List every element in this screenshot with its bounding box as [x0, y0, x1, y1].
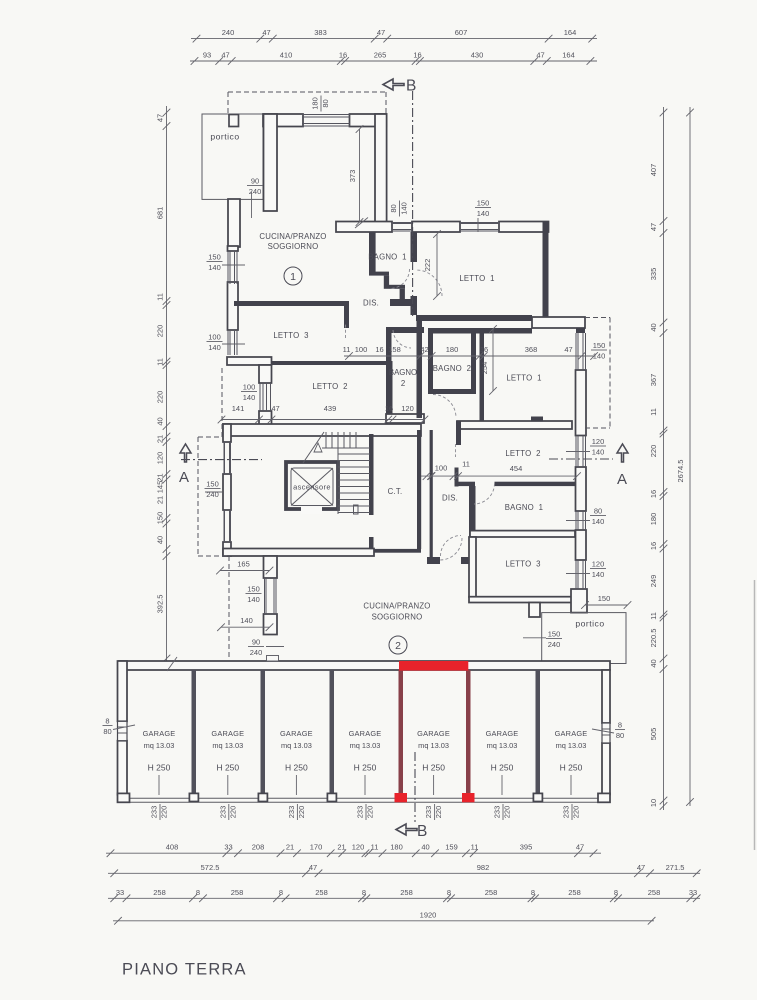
svg-text:150: 150: [206, 480, 219, 489]
svg-text:150: 150: [208, 253, 221, 262]
svg-text:120: 120: [156, 452, 165, 465]
svg-text:8: 8: [531, 888, 535, 897]
svg-text:140: 140: [247, 595, 260, 604]
svg-text:233: 233: [493, 806, 502, 819]
svg-text:80: 80: [616, 731, 624, 740]
svg-text:368: 368: [525, 345, 538, 354]
svg-text:410: 410: [280, 51, 293, 60]
svg-text:335: 335: [649, 268, 658, 281]
svg-text:220: 220: [434, 806, 443, 819]
svg-text:220: 220: [366, 806, 375, 819]
svg-text:H 250: H 250: [491, 763, 514, 773]
svg-text:47: 47: [637, 863, 645, 872]
svg-text:GARAGE: GARAGE: [211, 729, 244, 738]
svg-text:140: 140: [592, 448, 605, 457]
svg-text:16: 16: [413, 51, 421, 60]
svg-text:120: 120: [352, 843, 365, 852]
svg-text:258: 258: [153, 888, 166, 897]
svg-text:158: 158: [388, 345, 401, 354]
svg-text:40: 40: [421, 843, 429, 852]
svg-text:208: 208: [252, 843, 265, 852]
svg-text:265: 265: [374, 51, 387, 60]
svg-text:145: 145: [156, 481, 165, 494]
svg-text:LETTO 2: LETTO 2: [505, 449, 540, 458]
svg-text:258: 258: [568, 888, 581, 897]
svg-text:H 250: H 250: [422, 763, 445, 773]
svg-text:47: 47: [576, 843, 584, 852]
svg-text:220: 220: [156, 325, 165, 338]
svg-text:11: 11: [371, 843, 379, 852]
svg-text:407: 407: [649, 164, 658, 177]
svg-text:PIANO TERRA: PIANO TERRA: [122, 961, 247, 979]
svg-text:220: 220: [228, 806, 237, 819]
svg-text:33: 33: [116, 888, 124, 897]
svg-text:mq 13.03: mq 13.03: [418, 741, 449, 750]
svg-text:982: 982: [477, 863, 490, 872]
svg-text:90: 90: [251, 177, 259, 186]
svg-text:21: 21: [156, 473, 165, 481]
svg-text:607: 607: [455, 28, 468, 37]
svg-text:21: 21: [286, 843, 294, 852]
svg-text:100: 100: [208, 333, 221, 342]
svg-text:47: 47: [649, 223, 658, 231]
svg-text:233: 233: [287, 806, 296, 819]
svg-text:40: 40: [156, 417, 165, 425]
svg-text:mq 13.03: mq 13.03: [144, 741, 175, 750]
svg-text:93: 93: [203, 51, 211, 60]
svg-text:mq 13.03: mq 13.03: [487, 741, 518, 750]
svg-text:258: 258: [648, 888, 661, 897]
svg-text:mq 13.03: mq 13.03: [281, 741, 312, 750]
svg-text:2674.5: 2674.5: [676, 460, 685, 483]
svg-text:A: A: [179, 469, 189, 486]
svg-text:BAGNO: BAGNO: [389, 368, 417, 377]
svg-text:1920: 1920: [420, 910, 437, 919]
svg-text:430: 430: [471, 51, 484, 60]
svg-text:180: 180: [311, 97, 320, 110]
svg-text:8: 8: [105, 717, 109, 726]
svg-text:505: 505: [649, 728, 658, 741]
svg-text:CUCINA/PRANZO: CUCINA/PRANZO: [363, 602, 430, 611]
svg-text:SOGGIORNO: SOGGIORNO: [372, 613, 423, 622]
svg-text:33: 33: [224, 843, 232, 852]
svg-text:220: 220: [649, 445, 658, 458]
svg-text:233: 233: [356, 806, 365, 819]
svg-text:C.T.: C.T.: [388, 487, 403, 496]
svg-text:BAGNO 1: BAGNO 1: [505, 503, 543, 512]
svg-text:16: 16: [649, 490, 658, 498]
svg-text:1: 1: [290, 271, 296, 283]
svg-text:220.5: 220.5: [649, 629, 658, 648]
svg-text:47: 47: [309, 863, 317, 872]
svg-text:150: 150: [156, 512, 165, 525]
svg-text:220: 220: [503, 806, 512, 819]
svg-text:H 250: H 250: [216, 763, 239, 773]
svg-text:11: 11: [471, 843, 479, 852]
svg-text:SOGGIORNO: SOGGIORNO: [268, 242, 319, 251]
svg-text:170: 170: [310, 843, 323, 852]
svg-text:8: 8: [362, 888, 366, 897]
svg-text:LETTO 3: LETTO 3: [273, 331, 308, 340]
svg-text:220: 220: [156, 391, 165, 404]
svg-text:150: 150: [247, 585, 260, 594]
svg-text:47: 47: [271, 404, 279, 413]
svg-text:47: 47: [564, 345, 572, 354]
svg-text:H 250: H 250: [354, 763, 377, 773]
svg-text:100: 100: [435, 464, 448, 473]
svg-text:8: 8: [614, 888, 618, 897]
svg-text:100: 100: [243, 383, 256, 392]
svg-text:8: 8: [618, 721, 622, 730]
svg-text:233: 233: [150, 806, 159, 819]
svg-text:2: 2: [395, 640, 401, 652]
svg-text:ascensore: ascensore: [293, 483, 331, 492]
svg-text:16: 16: [339, 51, 347, 60]
svg-text:47: 47: [156, 114, 165, 122]
svg-text:80: 80: [321, 99, 330, 107]
svg-text:GARAGE: GARAGE: [349, 729, 382, 738]
svg-text:mq 13.03: mq 13.03: [350, 741, 381, 750]
svg-text:H 250: H 250: [560, 763, 583, 773]
svg-text:H 250: H 250: [148, 763, 171, 773]
svg-text:150: 150: [593, 341, 606, 350]
svg-text:220: 220: [572, 806, 581, 819]
svg-text:40: 40: [156, 536, 165, 544]
svg-text:249: 249: [649, 575, 658, 588]
svg-text:47: 47: [221, 51, 229, 60]
svg-text:222: 222: [423, 259, 432, 272]
svg-text:150: 150: [548, 630, 561, 639]
svg-text:21: 21: [337, 843, 345, 852]
svg-text:383: 383: [314, 28, 327, 37]
svg-text:150: 150: [598, 594, 611, 603]
svg-text:395: 395: [520, 843, 533, 852]
svg-text:233: 233: [562, 806, 571, 819]
svg-text:GARAGE: GARAGE: [555, 729, 588, 738]
svg-text:21: 21: [156, 496, 165, 504]
svg-text:mq 13.03: mq 13.03: [212, 741, 243, 750]
svg-text:240: 240: [249, 187, 262, 196]
svg-text:16: 16: [480, 345, 488, 354]
svg-text:LETTO 3: LETTO 3: [505, 560, 540, 569]
svg-text:258: 258: [315, 888, 328, 897]
svg-text:LETTO 2: LETTO 2: [312, 382, 347, 391]
svg-text:164: 164: [564, 28, 577, 37]
svg-text:portico: portico: [210, 132, 239, 142]
svg-text:A: A: [617, 471, 627, 488]
svg-text:439: 439: [324, 404, 337, 413]
svg-text:47: 47: [536, 51, 544, 60]
svg-text:16: 16: [385, 404, 393, 413]
svg-text:233: 233: [424, 806, 433, 819]
svg-text:120: 120: [592, 437, 605, 446]
svg-text:H 250: H 250: [285, 763, 308, 773]
svg-text:271.5: 271.5: [666, 863, 685, 872]
svg-text:33: 33: [689, 888, 697, 897]
svg-text:GARAGE: GARAGE: [417, 729, 450, 738]
svg-text:mq 13.03: mq 13.03: [556, 741, 587, 750]
svg-text:220: 220: [160, 806, 169, 819]
svg-text:40: 40: [649, 659, 658, 667]
svg-text:258: 258: [485, 888, 498, 897]
svg-text:portico: portico: [575, 619, 604, 629]
svg-text:140: 140: [208, 263, 221, 272]
svg-text:11: 11: [156, 358, 165, 366]
svg-text:140: 140: [243, 393, 256, 402]
svg-text:CUCINA/PRANZO: CUCINA/PRANZO: [259, 232, 326, 241]
svg-text:120: 120: [401, 404, 414, 413]
svg-text:80: 80: [594, 507, 602, 516]
svg-text:40: 40: [649, 323, 658, 331]
svg-text:140: 140: [477, 209, 490, 218]
svg-text:120: 120: [592, 560, 605, 569]
svg-text:BAGNO 1: BAGNO 1: [368, 253, 406, 262]
svg-text:180: 180: [649, 513, 658, 526]
svg-text:47: 47: [262, 28, 270, 37]
svg-text:258: 258: [400, 888, 413, 897]
svg-text:16: 16: [375, 345, 383, 354]
svg-text:42: 42: [420, 345, 428, 354]
svg-text:140: 140: [592, 517, 605, 526]
svg-text:454: 454: [510, 464, 523, 473]
svg-text:408: 408: [166, 843, 179, 852]
svg-text:GARAGE: GARAGE: [143, 729, 176, 738]
svg-text:392.5: 392.5: [156, 595, 165, 614]
svg-text:180: 180: [390, 843, 403, 852]
svg-text:681: 681: [156, 207, 165, 220]
svg-text:240: 240: [548, 640, 561, 649]
svg-text:240: 240: [250, 648, 263, 657]
svg-text:GARAGE: GARAGE: [486, 729, 519, 738]
svg-text:90: 90: [252, 638, 260, 647]
svg-text:8: 8: [279, 888, 283, 897]
svg-text:B: B: [406, 78, 416, 95]
svg-text:DIS.: DIS.: [442, 494, 458, 503]
svg-text:367: 367: [649, 374, 658, 387]
svg-text:BAGNO 2: BAGNO 2: [433, 364, 471, 373]
svg-text:11: 11: [649, 612, 658, 620]
svg-text:150: 150: [477, 199, 490, 208]
svg-text:140: 140: [400, 202, 409, 215]
svg-text:140: 140: [593, 352, 606, 361]
svg-text:DIS.: DIS.: [363, 299, 379, 308]
svg-text:11: 11: [649, 408, 658, 416]
svg-text:B: B: [417, 823, 427, 840]
svg-text:140: 140: [208, 343, 221, 352]
svg-text:11: 11: [462, 460, 470, 469]
svg-text:240: 240: [206, 490, 219, 499]
svg-text:11: 11: [343, 345, 351, 354]
svg-text:240: 240: [222, 28, 235, 37]
svg-text:LETTO 1: LETTO 1: [506, 374, 541, 383]
svg-text:80: 80: [103, 727, 111, 736]
svg-text:80: 80: [389, 204, 398, 212]
svg-text:141: 141: [232, 404, 245, 413]
svg-text:21: 21: [156, 435, 165, 443]
svg-text:220: 220: [297, 806, 306, 819]
svg-text:8: 8: [447, 888, 451, 897]
svg-text:47: 47: [377, 28, 385, 37]
svg-text:2: 2: [401, 379, 405, 388]
svg-text:258: 258: [231, 888, 244, 897]
svg-text:11: 11: [156, 293, 165, 301]
svg-text:180: 180: [446, 345, 459, 354]
svg-text:572.5: 572.5: [201, 863, 220, 872]
svg-text:8: 8: [196, 888, 200, 897]
svg-text:165: 165: [237, 560, 250, 569]
svg-text:140: 140: [240, 616, 253, 625]
svg-text:10: 10: [649, 799, 658, 807]
svg-text:254: 254: [480, 362, 489, 375]
svg-text:100: 100: [355, 345, 368, 354]
svg-text:233: 233: [218, 806, 227, 819]
svg-text:GARAGE: GARAGE: [280, 729, 313, 738]
svg-text:164: 164: [562, 51, 575, 60]
svg-text:159: 159: [445, 843, 458, 852]
svg-text:LETTO 1: LETTO 1: [459, 274, 494, 283]
svg-text:140: 140: [592, 570, 605, 579]
svg-text:373: 373: [348, 170, 357, 183]
svg-text:16: 16: [649, 542, 658, 550]
